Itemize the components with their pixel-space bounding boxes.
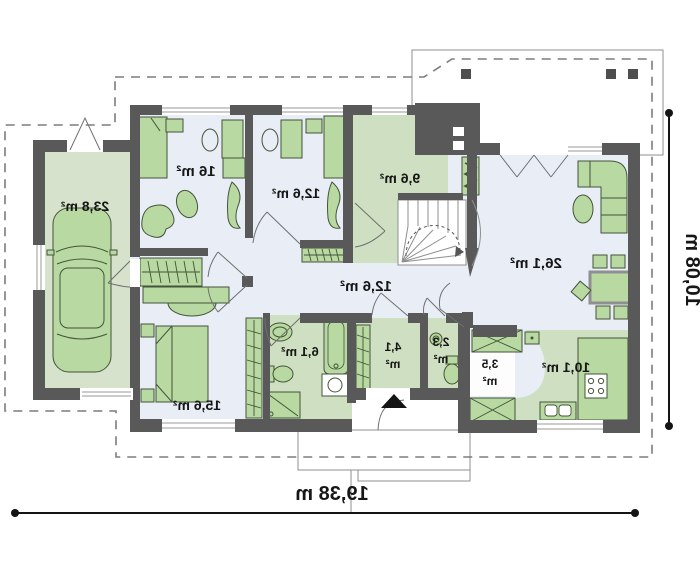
hall-area-label: 12,6 m² (340, 278, 392, 295)
staircase (398, 200, 466, 265)
car-mirror (47, 250, 54, 255)
window (568, 143, 602, 155)
stove (585, 374, 607, 398)
entry-door (366, 388, 410, 430)
wardrobe-area-unit: m² (386, 357, 401, 371)
bed (324, 116, 346, 178)
dining-chair (593, 255, 607, 268)
porch-slab (298, 430, 470, 470)
door-post (242, 276, 253, 287)
garage-area-label: 23,8 m² (61, 198, 110, 214)
garage-window (33, 245, 45, 290)
toilet (273, 366, 293, 382)
room2-area-label: 12,6 m² (272, 185, 321, 201)
window (162, 105, 230, 115)
terrace-post (606, 69, 616, 79)
sink (268, 323, 292, 341)
wc-area-value: 2,3 (432, 335, 449, 349)
living-area-label: 26,1 m² (510, 255, 562, 272)
window (537, 420, 603, 433)
garage-door (67, 118, 103, 152)
toilet (444, 364, 460, 384)
dresser (143, 287, 229, 303)
porch-step (358, 470, 470, 481)
floor-plan-page: 19,38 m 10,08 m 23,8 m² 16 m² 12,6 m² 9,… (0, 0, 700, 575)
pantry-area-value: 3,5 (481, 357, 498, 371)
bed (156, 326, 208, 402)
bed (138, 117, 167, 178)
floor-plan-drawing: 19,38 m 10,08 m 23,8 m² 16 m² 12,6 m² 9,… (0, 0, 700, 575)
nightstand (141, 324, 154, 337)
total-width-label: 19,38 m (295, 483, 368, 505)
wc-area-unit: m² (434, 352, 449, 366)
garage-gate (80, 388, 133, 400)
window (372, 105, 407, 115)
pillow (306, 119, 322, 133)
car-mirror (110, 250, 117, 255)
wardrobe-area-value: 4,1 (384, 340, 401, 354)
washing-machine (322, 374, 348, 396)
car (47, 208, 117, 372)
nightstand (141, 389, 154, 402)
terrace-post (461, 69, 471, 79)
coffee-table (573, 195, 593, 223)
desk (222, 120, 243, 158)
pantry-area-unit: m² (483, 374, 498, 388)
dining-chair (614, 306, 628, 319)
total-height-label: 10,08 m (681, 233, 700, 306)
pillow (166, 119, 183, 132)
utility-area-label: 9,6 m² (379, 170, 420, 186)
bedroom-area-label: 15,6 m² (173, 397, 222, 413)
dimension-right: 10,08 m (665, 109, 700, 430)
terrace-post (628, 69, 638, 79)
window (282, 105, 343, 115)
window (162, 419, 235, 432)
kitchen-area-label: 10,1 m² (542, 359, 591, 375)
dining-chair (596, 306, 610, 319)
cabinet (223, 158, 245, 178)
dining-table (590, 272, 630, 303)
dimension-bottom: 19,38 m (11, 483, 639, 517)
bathroom-area-label: 6,1 m² (281, 344, 319, 359)
dining-chair (611, 255, 625, 268)
desk (281, 120, 302, 158)
room1-area-label: 16 m² (176, 163, 215, 180)
